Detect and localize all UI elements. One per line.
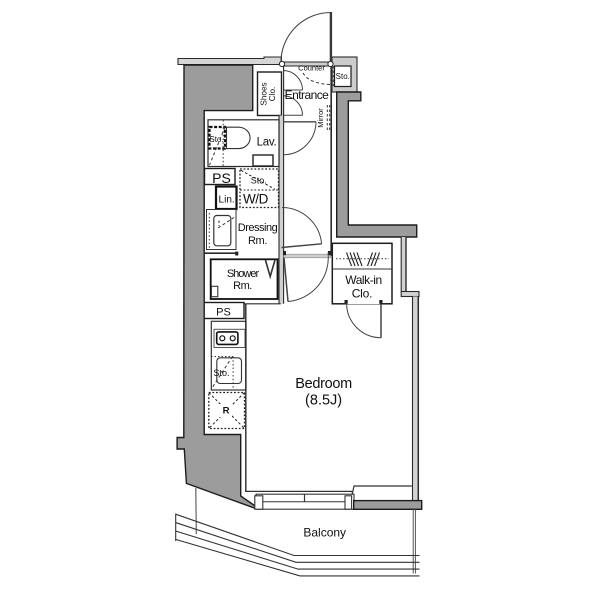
svg-text:Walk-in: Walk-in bbox=[345, 273, 381, 287]
svg-text:Dressing: Dressing bbox=[238, 222, 278, 234]
svg-text:Shower: Shower bbox=[227, 268, 260, 280]
svg-text:Sto.: Sto. bbox=[336, 72, 350, 81]
svg-text:PS: PS bbox=[216, 307, 231, 319]
svg-text:Rm.: Rm. bbox=[233, 280, 252, 292]
svg-text:(8.5J): (8.5J) bbox=[305, 393, 342, 409]
svg-text:Lav.: Lav. bbox=[257, 137, 277, 149]
svg-text:Sto.: Sto. bbox=[251, 176, 267, 186]
svg-text:Bedroom: Bedroom bbox=[295, 376, 352, 392]
svg-text:R: R bbox=[223, 406, 230, 417]
svg-text:Lin.: Lin. bbox=[219, 195, 235, 206]
svg-text:Sto.: Sto. bbox=[213, 368, 229, 378]
svg-text:Counter: Counter bbox=[298, 64, 325, 73]
svg-text:PS: PS bbox=[212, 170, 231, 186]
svg-text:Sto.: Sto. bbox=[209, 135, 223, 144]
svg-text:Rm.: Rm. bbox=[248, 235, 267, 247]
svg-text:Mirror: Mirror bbox=[316, 108, 325, 128]
svg-text:W/D: W/D bbox=[243, 192, 269, 207]
svg-text:Clo.: Clo. bbox=[352, 287, 373, 301]
svg-text:Entrance: Entrance bbox=[285, 88, 330, 102]
svg-text:Balcony: Balcony bbox=[303, 526, 346, 540]
svg-text:Clo.: Clo. bbox=[268, 87, 277, 102]
